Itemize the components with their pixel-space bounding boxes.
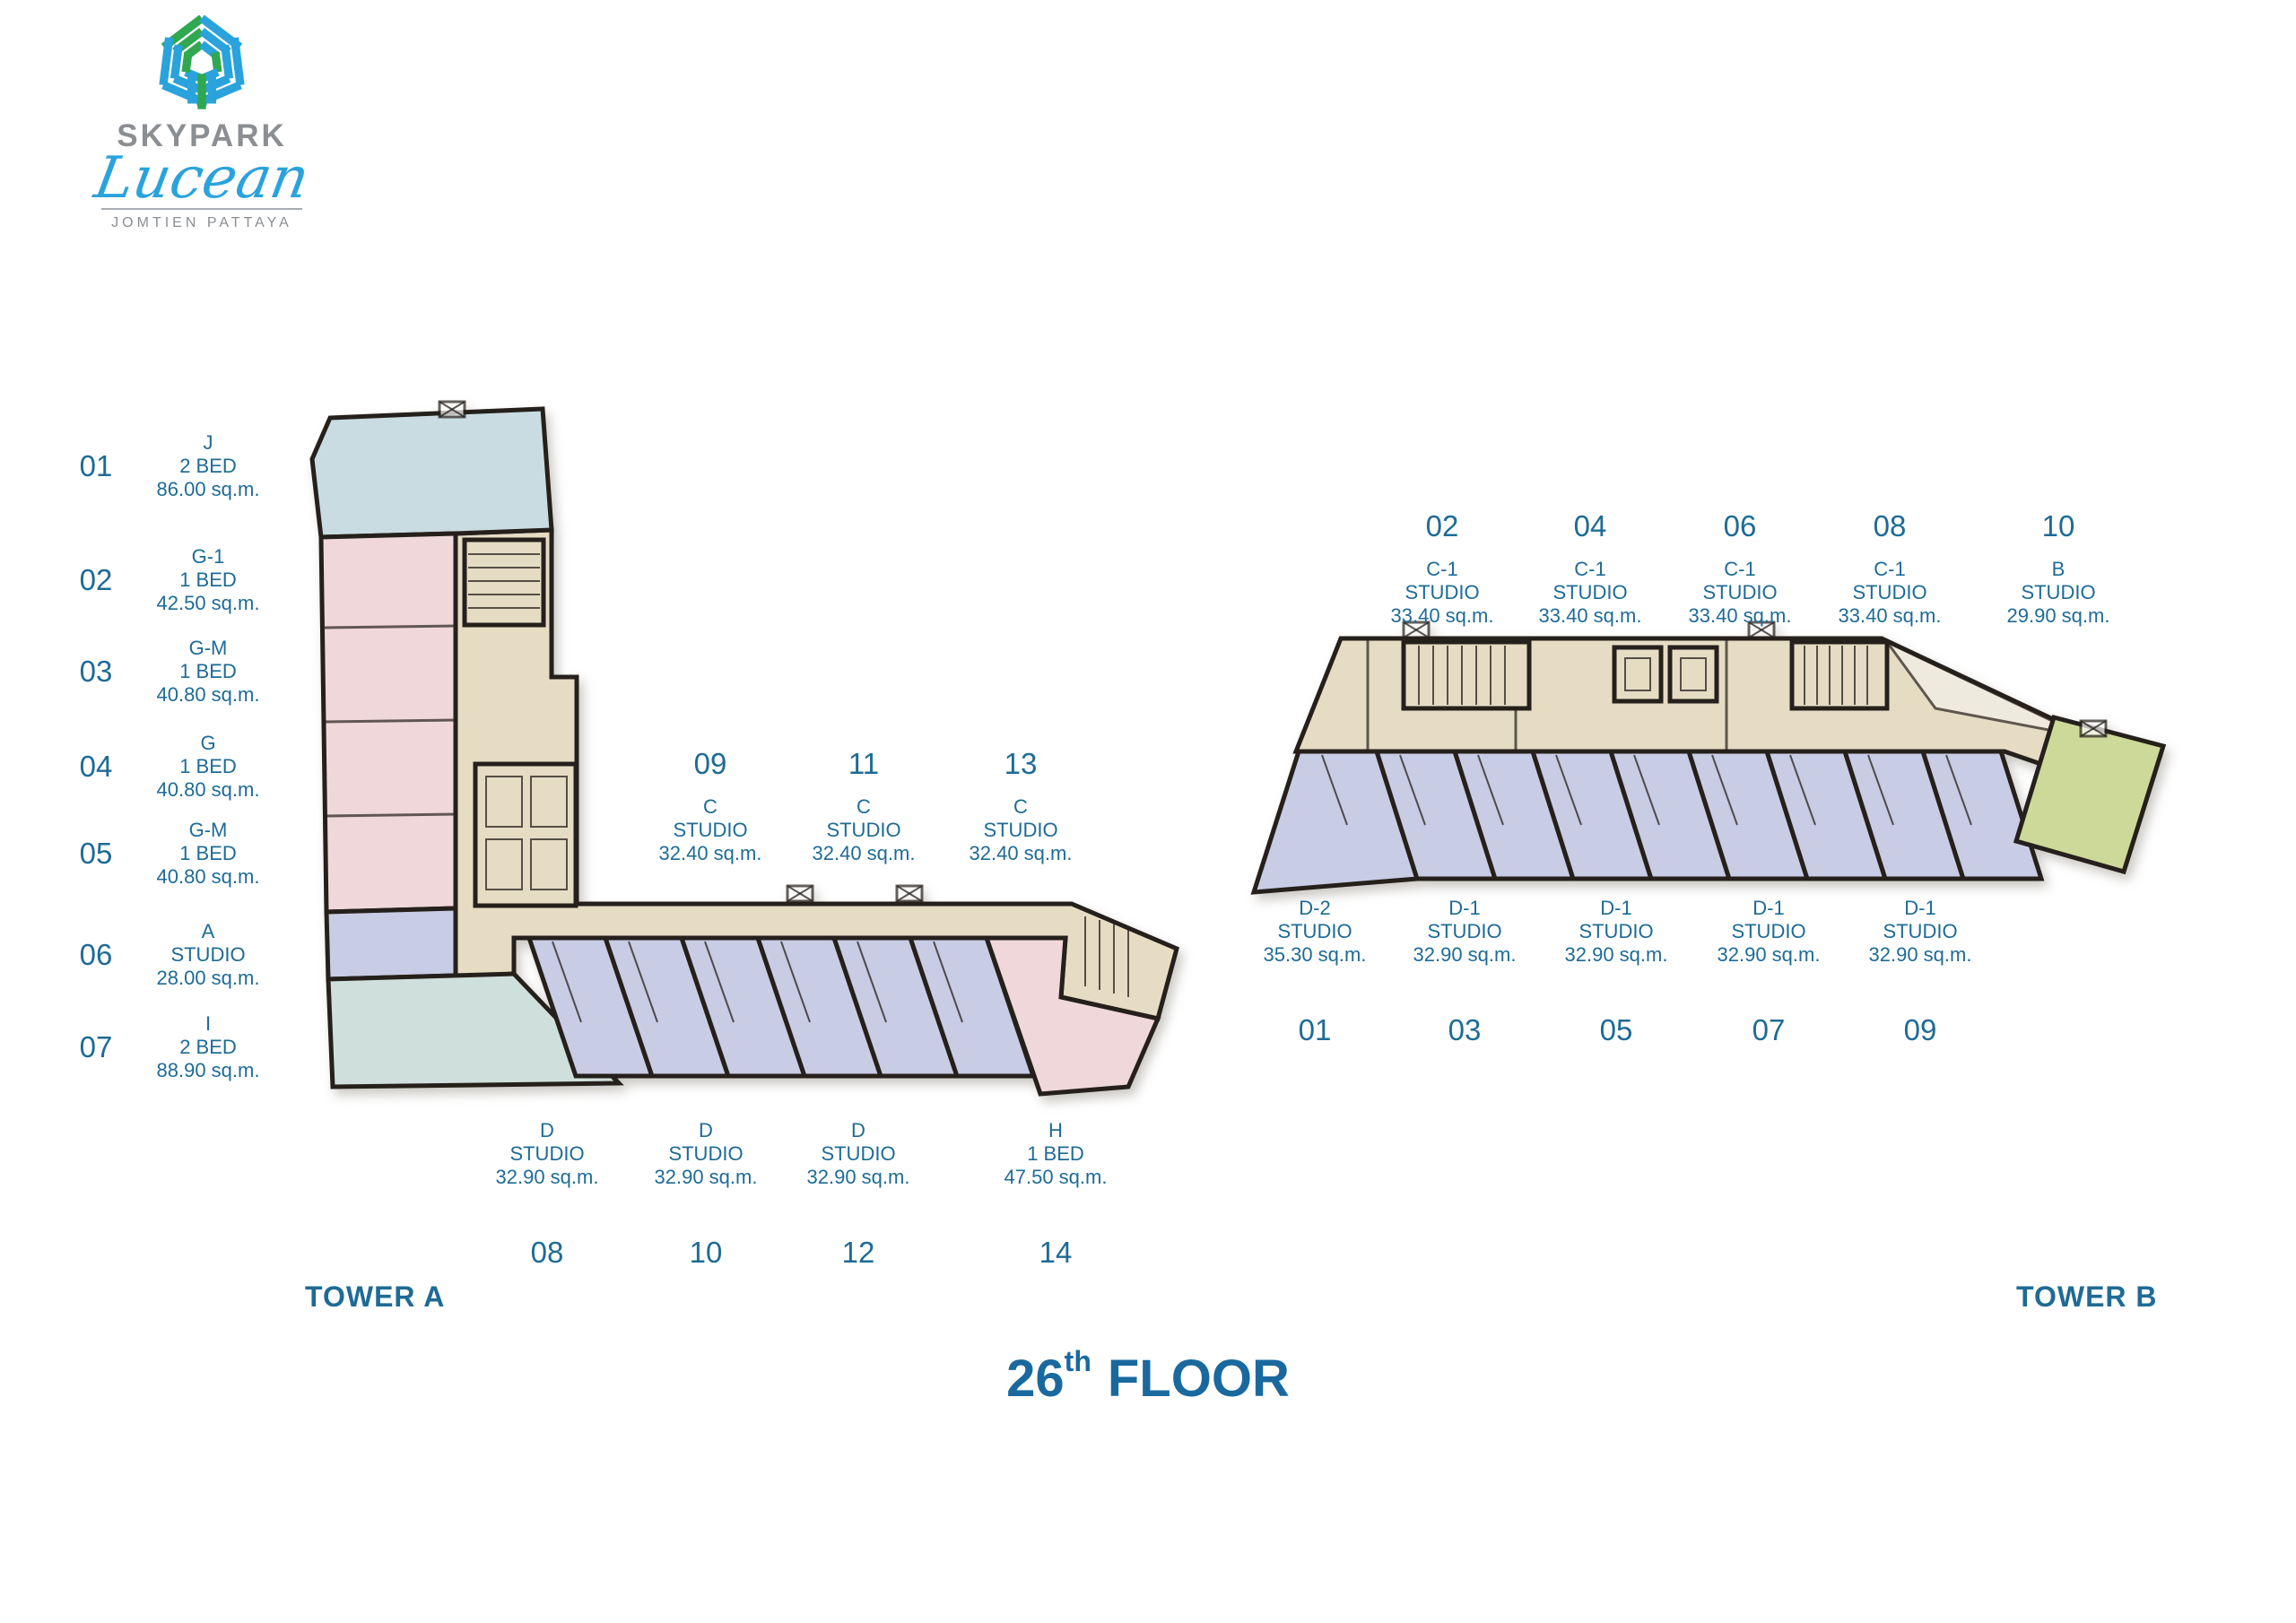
unit-layout: 1 BED bbox=[127, 568, 289, 592]
unit-label: 09 C STUDIO 32.40 sq.m. bbox=[625, 747, 796, 865]
unit-layout: STUDIO bbox=[1655, 581, 1825, 604]
unit-info: D STUDIO 32.90 sq.m. bbox=[462, 1119, 632, 1189]
unit-info: I 2 BED 88.90 sq.m. bbox=[127, 1012, 289, 1082]
unit-type: A bbox=[127, 920, 289, 943]
unit-info: D STUDIO 32.90 sq.m. bbox=[621, 1119, 791, 1189]
unit-j-shape bbox=[312, 409, 552, 537]
tower-b-stairs-1 bbox=[1404, 642, 1529, 708]
unit-area: 33.40 sq.m. bbox=[1505, 604, 1675, 628]
unit-layout: 1 BED bbox=[127, 842, 289, 865]
unit-area: 40.80 sq.m. bbox=[127, 865, 289, 889]
unit-info: G 1 BED 40.80 sq.m. bbox=[127, 732, 289, 802]
unit-label: 06 C-1 STUDIO 33.40 sq.m. bbox=[1655, 509, 1825, 628]
unit-info: C-1 STUDIO 33.40 sq.m. bbox=[1357, 558, 1527, 628]
unit-number: 04 bbox=[65, 750, 127, 784]
unit-area: 32.90 sq.m. bbox=[1835, 943, 2005, 967]
unit-layout: 2 BED bbox=[127, 455, 289, 478]
unit-label-row: 04 G 1 BED 40.80 sq.m. bbox=[65, 732, 298, 802]
unit-label: 11 C STUDIO 32.40 sq.m. bbox=[778, 747, 949, 865]
floor-word: FLOOR bbox=[1108, 1350, 1290, 1408]
unit-number: 01 bbox=[1230, 1013, 1400, 1047]
unit-area: 32.40 sq.m. bbox=[935, 842, 1106, 865]
tower-a-studio-row bbox=[529, 938, 1033, 1076]
unit-area: 35.30 sq.m. bbox=[1230, 943, 1400, 967]
unit-type: C-1 bbox=[1655, 558, 1825, 581]
unit-layout: STUDIO bbox=[621, 1142, 791, 1166]
unit-layout: 1 BED bbox=[127, 755, 289, 778]
unit-layout: STUDIO bbox=[1379, 920, 1550, 943]
unit-type: C bbox=[625, 795, 796, 819]
unit-type: G-M bbox=[127, 637, 289, 660]
unit-info: D STUDIO 32.90 sq.m. bbox=[773, 1119, 944, 1189]
unit-layout: STUDIO bbox=[935, 819, 1106, 842]
unit-type: D bbox=[773, 1119, 944, 1142]
unit-layout: 2 BED bbox=[127, 1036, 289, 1059]
unit-info: G-M 1 BED 40.80 sq.m. bbox=[127, 637, 289, 707]
unit-type: H bbox=[970, 1119, 1141, 1142]
unit-type: C-1 bbox=[1805, 558, 1975, 581]
unit-number: 02 bbox=[1357, 509, 1527, 543]
floorplan-sheet: SKYPARK Lucean JOMTIEN PATTAYA 01 J 2 BE… bbox=[0, 0, 2296, 1623]
unit-label: D-1 STUDIO 32.90 sq.m. 05 bbox=[1531, 897, 1701, 1047]
unit-number: 05 bbox=[65, 837, 127, 871]
unit-layout: 1 BED bbox=[127, 660, 289, 683]
unit-layout: STUDIO bbox=[1531, 920, 1701, 943]
unit-type: G bbox=[127, 732, 289, 755]
unit-label-row: 01 J 2 BED 86.00 sq.m. bbox=[65, 431, 298, 501]
tower-b-plan bbox=[1254, 622, 2163, 892]
unit-info: A STUDIO 28.00 sq.m. bbox=[127, 920, 289, 990]
unit-number: 02 bbox=[65, 563, 127, 597]
unit-type: B bbox=[1973, 558, 2144, 581]
unit-label-row: 02 G-1 1 BED 42.50 sq.m. bbox=[65, 545, 298, 615]
brand-logo: SKYPARK Lucean JOMTIEN PATTAYA bbox=[85, 9, 318, 231]
unit-area: 33.40 sq.m. bbox=[1805, 604, 1975, 628]
unit-label: D-1 STUDIO 32.90 sq.m. 07 bbox=[1683, 897, 1854, 1047]
unit-info: J 2 BED 86.00 sq.m. bbox=[127, 431, 289, 501]
unit-label: D-2 STUDIO 35.30 sq.m. 01 bbox=[1230, 897, 1400, 1047]
unit-type: D-1 bbox=[1531, 897, 1701, 920]
unit-type: D-2 bbox=[1230, 897, 1400, 920]
unit-info: D-2 STUDIO 35.30 sq.m. bbox=[1230, 897, 1400, 967]
unit-info: D-1 STUDIO 32.90 sq.m. bbox=[1835, 897, 2005, 967]
unit-area: 32.90 sq.m. bbox=[773, 1166, 944, 1189]
unit-number: 08 bbox=[462, 1236, 632, 1270]
skypark-logo-icon bbox=[135, 9, 269, 117]
unit-info: D-1 STUDIO 32.90 sq.m. bbox=[1531, 897, 1701, 967]
unit-info: C-1 STUDIO 33.40 sq.m. bbox=[1655, 558, 1825, 628]
unit-info: G-M 1 BED 40.80 sq.m. bbox=[127, 819, 289, 889]
tower-b-stairs-2 bbox=[1792, 642, 1887, 708]
unit-label: D-1 STUDIO 32.90 sq.m. 09 bbox=[1835, 897, 2005, 1047]
unit-label: 10 B STUDIO 29.90 sq.m. bbox=[1973, 509, 2144, 628]
unit-area: 28.00 sq.m. bbox=[127, 967, 289, 990]
unit-type: C-1 bbox=[1357, 558, 1527, 581]
floor-number: 26 bbox=[1006, 1350, 1065, 1408]
unit-area: 32.90 sq.m. bbox=[462, 1166, 632, 1189]
unit-layout: STUDIO bbox=[1973, 581, 2144, 604]
unit-area: 40.80 sq.m. bbox=[127, 683, 289, 707]
unit-type: G-1 bbox=[127, 545, 289, 568]
unit-layout: STUDIO bbox=[1835, 920, 2005, 943]
unit-number: 06 bbox=[1655, 509, 1825, 543]
unit-number: 10 bbox=[1973, 509, 2144, 543]
unit-info: H 1 BED 47.50 sq.m. bbox=[970, 1119, 1141, 1189]
unit-info: C STUDIO 32.40 sq.m. bbox=[935, 795, 1106, 865]
unit-label: 13 C STUDIO 32.40 sq.m. bbox=[935, 747, 1106, 865]
unit-area: 32.90 sq.m. bbox=[1531, 943, 1701, 967]
tower-a-label: TOWER A bbox=[305, 1280, 445, 1314]
unit-type: C bbox=[778, 795, 949, 819]
unit-number: 09 bbox=[1835, 1013, 2005, 1047]
unit-info: C STUDIO 32.40 sq.m. bbox=[778, 795, 949, 865]
unit-area: 47.50 sq.m. bbox=[970, 1166, 1141, 1189]
unit-layout: STUDIO bbox=[778, 819, 949, 842]
unit-layout: STUDIO bbox=[1505, 581, 1675, 604]
unit-a-shape bbox=[326, 908, 456, 979]
floor-ordinal: th bbox=[1065, 1345, 1091, 1377]
unit-area: 32.90 sq.m. bbox=[1683, 943, 1854, 967]
unit-layout: STUDIO bbox=[1805, 581, 1975, 604]
tower-b-label: TOWER B bbox=[2016, 1280, 2158, 1314]
floor-title: 26thFLOOR bbox=[0, 1345, 2296, 1409]
unit-number: 05 bbox=[1531, 1013, 1701, 1047]
unit-area: 32.90 sq.m. bbox=[621, 1166, 791, 1189]
unit-number: 03 bbox=[65, 655, 127, 689]
tower-a-elevators bbox=[475, 764, 576, 906]
unit-label: D STUDIO 32.90 sq.m. 12 bbox=[773, 1119, 944, 1270]
unit-number: 03 bbox=[1379, 1013, 1550, 1047]
unit-label: D-1 STUDIO 32.90 sq.m. 03 bbox=[1379, 897, 1550, 1047]
unit-label: 04 C-1 STUDIO 33.40 sq.m. bbox=[1505, 509, 1675, 628]
unit-number: 10 bbox=[621, 1236, 791, 1270]
unit-number: 14 bbox=[970, 1236, 1141, 1270]
unit-type: D bbox=[462, 1119, 632, 1142]
unit-number: 01 bbox=[65, 449, 127, 483]
unit-label: 08 C-1 STUDIO 33.40 sq.m. bbox=[1805, 509, 1975, 628]
unit-info: C STUDIO 32.40 sq.m. bbox=[625, 795, 796, 865]
unit-type: J bbox=[127, 431, 289, 455]
unit-layout: 1 BED bbox=[970, 1142, 1141, 1166]
unit-number: 04 bbox=[1505, 509, 1675, 543]
unit-label-row: 06 A STUDIO 28.00 sq.m. bbox=[65, 920, 298, 990]
unit-layout: STUDIO bbox=[462, 1142, 632, 1166]
unit-area: 29.90 sq.m. bbox=[1973, 604, 2144, 628]
unit-number: 06 bbox=[65, 938, 127, 972]
unit-info: B STUDIO 29.90 sq.m. bbox=[1973, 558, 2144, 628]
unit-area: 40.80 sq.m. bbox=[127, 778, 289, 802]
unit-area: 32.90 sq.m. bbox=[1379, 943, 1550, 967]
unit-number: 12 bbox=[773, 1236, 944, 1270]
unit-area: 32.40 sq.m. bbox=[778, 842, 949, 865]
unit-label-row: 03 G-M 1 BED 40.80 sq.m. bbox=[65, 637, 298, 707]
unit-info: C-1 STUDIO 33.40 sq.m. bbox=[1505, 558, 1675, 628]
unit-area: 88.90 sq.m. bbox=[127, 1059, 289, 1082]
unit-area: 32.40 sq.m. bbox=[625, 842, 796, 865]
unit-area: 33.40 sq.m. bbox=[1357, 604, 1527, 628]
unit-label: 02 C-1 STUDIO 33.40 sq.m. bbox=[1357, 509, 1527, 628]
unit-number: 09 bbox=[625, 747, 796, 781]
unit-type: D-1 bbox=[1683, 897, 1854, 920]
unit-number: 07 bbox=[65, 1030, 127, 1064]
unit-label: D STUDIO 32.90 sq.m. 08 bbox=[462, 1119, 632, 1270]
unit-type: C-1 bbox=[1505, 558, 1675, 581]
unit-area: 33.40 sq.m. bbox=[1655, 604, 1825, 628]
brand-subtitle: JOMTIEN PATTAYA bbox=[85, 215, 318, 231]
unit-number: 13 bbox=[935, 747, 1106, 781]
unit-type: D-1 bbox=[1379, 897, 1550, 920]
unit-layout: STUDIO bbox=[1357, 581, 1527, 604]
unit-label: D STUDIO 32.90 sq.m. 10 bbox=[621, 1119, 791, 1270]
unit-label-row: 05 G-M 1 BED 40.80 sq.m. bbox=[65, 819, 298, 889]
unit-number: 08 bbox=[1805, 509, 1975, 543]
unit-info: G-1 1 BED 42.50 sq.m. bbox=[127, 545, 289, 615]
unit-type: C bbox=[935, 795, 1106, 819]
tower-b-studio-row bbox=[1254, 751, 2041, 892]
unit-number: 07 bbox=[1683, 1013, 1854, 1047]
unit-label: H 1 BED 47.50 sq.m. 14 bbox=[970, 1119, 1141, 1270]
unit-layout: STUDIO bbox=[1230, 920, 1400, 943]
tower-a-stairs bbox=[465, 540, 544, 625]
unit-area: 42.50 sq.m. bbox=[127, 592, 289, 615]
unit-type: G-M bbox=[127, 819, 289, 842]
unit-layout: STUDIO bbox=[625, 819, 796, 842]
unit-info: D-1 STUDIO 32.90 sq.m. bbox=[1379, 897, 1550, 967]
unit-layout: STUDIO bbox=[1683, 920, 1854, 943]
unit-layout: STUDIO bbox=[127, 943, 289, 967]
unit-area: 86.00 sq.m. bbox=[127, 478, 289, 501]
brand-script-name: Lucean bbox=[80, 149, 324, 208]
unit-label-row: 07 I 2 BED 88.90 sq.m. bbox=[65, 1012, 298, 1082]
unit-info: D-1 STUDIO 32.90 sq.m. bbox=[1683, 897, 1854, 967]
unit-type: D-1 bbox=[1835, 897, 2005, 920]
unit-number: 11 bbox=[778, 747, 949, 781]
unit-info: C-1 STUDIO 33.40 sq.m. bbox=[1805, 558, 1975, 628]
unit-type: D bbox=[621, 1119, 791, 1142]
unit-type: I bbox=[127, 1012, 289, 1036]
unit-layout: STUDIO bbox=[773, 1142, 944, 1166]
